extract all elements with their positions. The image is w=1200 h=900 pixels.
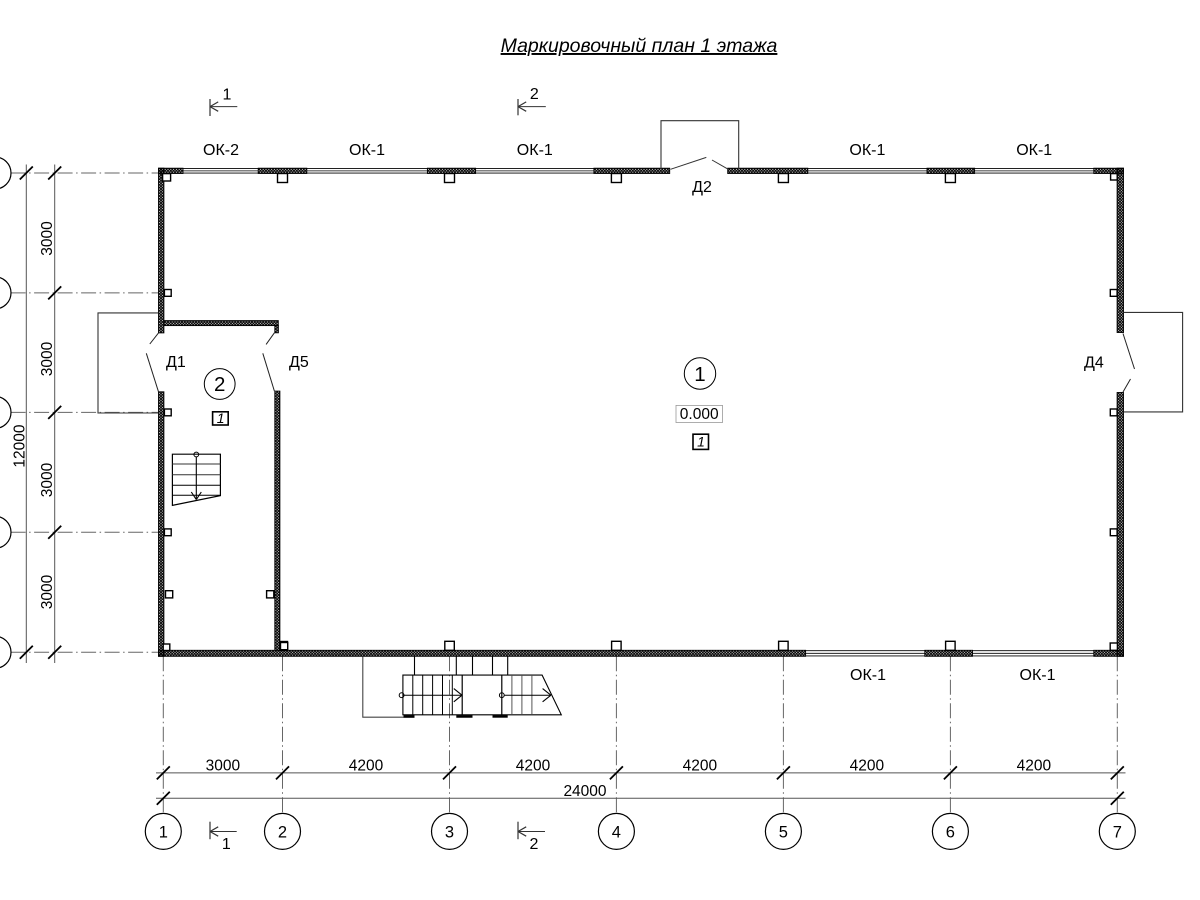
svg-text:ОК-1: ОК-1 [1020, 667, 1056, 684]
svg-text:Д2: Д2 [692, 179, 712, 196]
svg-text:12000: 12000 [12, 424, 29, 467]
svg-text:5: 5 [779, 823, 788, 841]
svg-text:ОК-1: ОК-1 [849, 142, 885, 159]
svg-text:7: 7 [1113, 823, 1122, 841]
svg-text:3000: 3000 [39, 221, 56, 256]
svg-text:1: 1 [223, 87, 232, 104]
svg-text:0.000: 0.000 [680, 406, 719, 423]
svg-text:1: 1 [159, 823, 168, 841]
svg-text:ОК-1: ОК-1 [1016, 142, 1052, 159]
svg-text:4200: 4200 [1017, 757, 1052, 774]
svg-text:3000: 3000 [39, 341, 56, 376]
svg-text:3000: 3000 [39, 574, 56, 609]
svg-text:ОК-1: ОК-1 [517, 142, 553, 159]
svg-text:Д1: Д1 [166, 354, 186, 371]
svg-text:3000: 3000 [39, 462, 56, 497]
svg-text:4200: 4200 [850, 757, 885, 774]
svg-text:24000: 24000 [563, 783, 606, 800]
svg-text:2: 2 [530, 86, 539, 103]
svg-text:ОК-2: ОК-2 [203, 142, 239, 159]
svg-text:4200: 4200 [683, 757, 718, 774]
svg-text:Маркировочный план 1 этажа: Маркировочный план 1 этажа [501, 35, 778, 57]
svg-text:1: 1 [697, 434, 705, 450]
svg-text:1: 1 [217, 410, 225, 426]
svg-text:4200: 4200 [516, 757, 551, 774]
svg-text:Д4: Д4 [1084, 355, 1104, 372]
svg-text:ОК-1: ОК-1 [850, 667, 886, 684]
svg-text:Д5: Д5 [289, 354, 309, 371]
svg-text:2: 2 [278, 823, 287, 841]
svg-text:1: 1 [694, 363, 705, 386]
svg-text:2: 2 [530, 836, 539, 853]
svg-text:ОК-1: ОК-1 [349, 142, 385, 159]
svg-text:6: 6 [946, 823, 955, 841]
svg-text:4200: 4200 [349, 757, 384, 774]
svg-text:3000: 3000 [206, 757, 241, 774]
svg-text:2: 2 [214, 373, 225, 396]
svg-text:4: 4 [612, 823, 621, 841]
svg-text:3: 3 [445, 823, 454, 841]
svg-text:1: 1 [222, 836, 231, 853]
